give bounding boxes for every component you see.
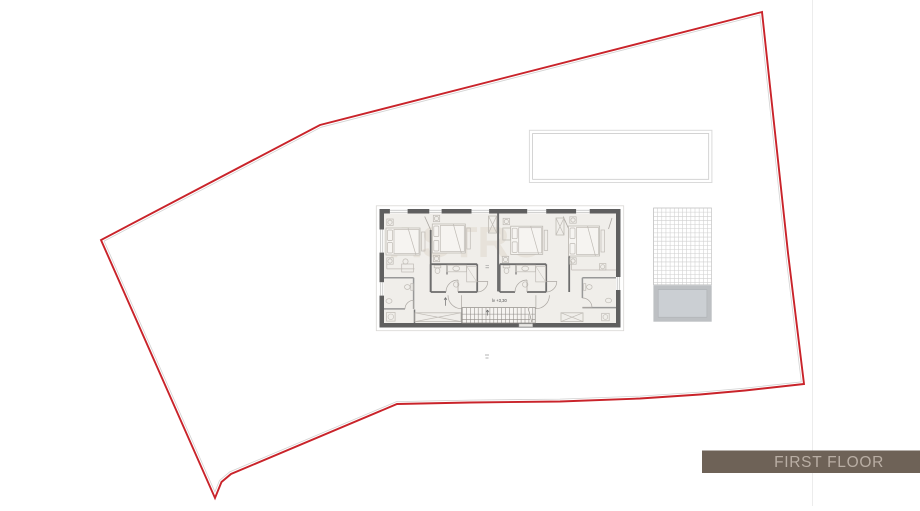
svg-text:lv +3,30: lv +3,30: [492, 298, 507, 303]
svg-text:FIRST FLOOR: FIRST FLOOR: [774, 454, 884, 471]
